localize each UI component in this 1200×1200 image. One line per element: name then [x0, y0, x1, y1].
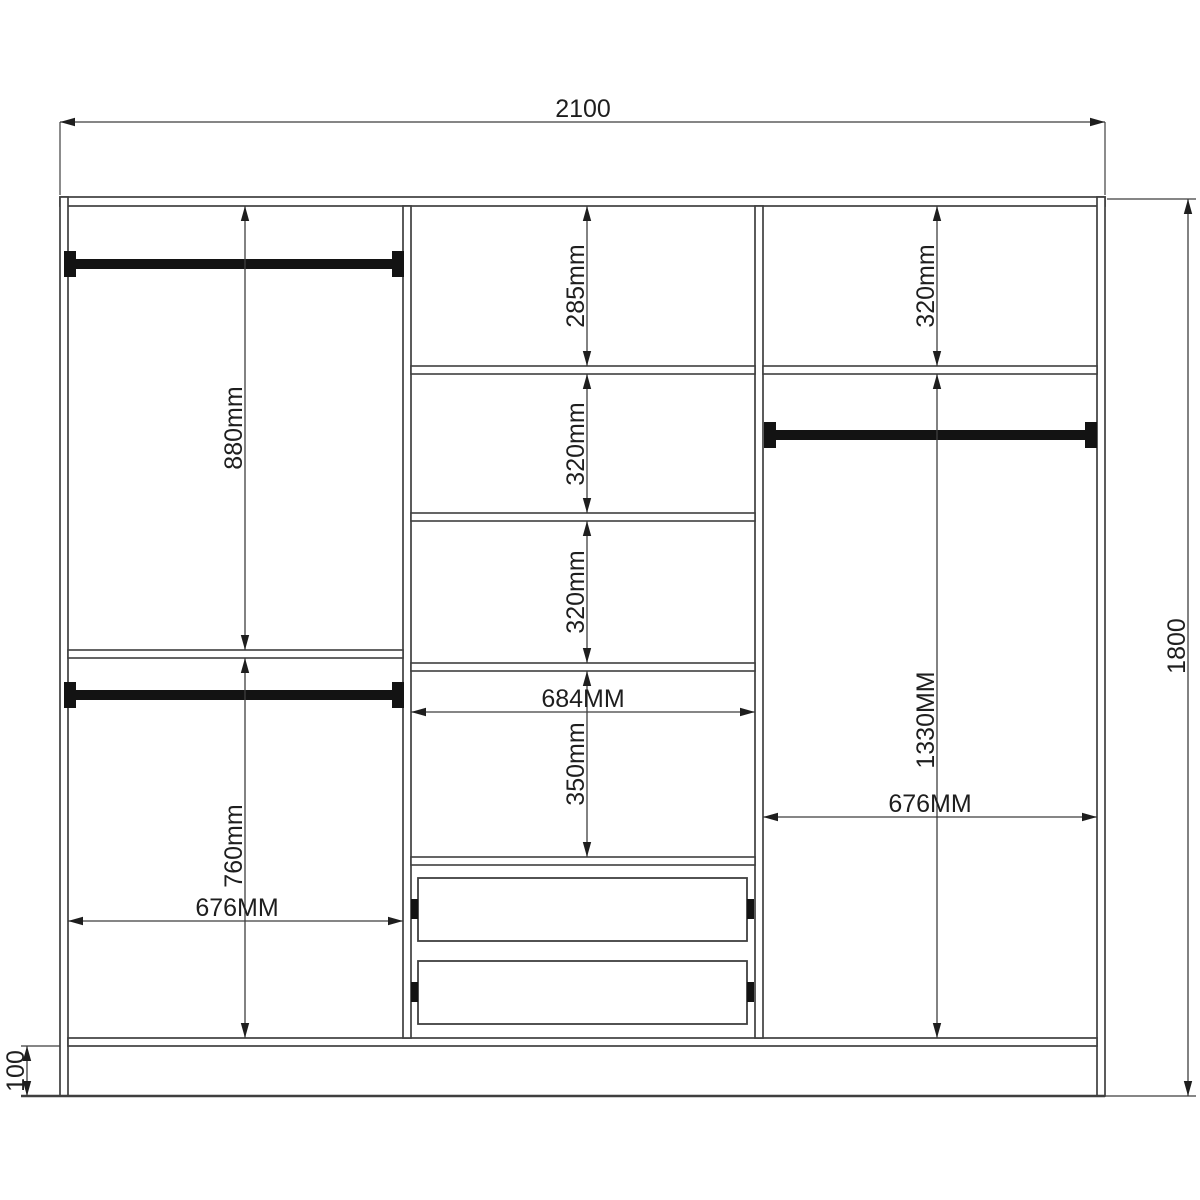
drawer-1	[411, 878, 754, 941]
dimension-arrow-left	[68, 917, 83, 925]
middle-shelf-3	[411, 663, 755, 671]
rail-bar	[776, 430, 1085, 440]
dimension-label: 320mm	[912, 244, 940, 327]
dimension-arrow-up	[583, 521, 591, 536]
dimension-label: 320mm	[562, 550, 590, 633]
dim-middle-shelf-gap-1: 320mm	[562, 374, 591, 513]
right-side-panel	[1097, 197, 1105, 1096]
right-hanging-rail	[764, 422, 1097, 448]
dimension-arrow-down	[583, 351, 591, 366]
left-upper-hanging-rail	[64, 251, 404, 277]
dimension-arrow-right	[1090, 118, 1105, 126]
middle-shelf-4	[411, 857, 755, 865]
dimension-label: 285mm	[562, 244, 590, 327]
dim-overall-height: 1800	[1163, 199, 1192, 1096]
dimension-arrow-up	[933, 374, 941, 389]
middle-shelf-2	[411, 513, 755, 521]
cabinet-structure	[21, 197, 1105, 1096]
dimension-label: 2100	[555, 95, 611, 123]
bottom-panel	[68, 1038, 1097, 1046]
dimension-arrow-up	[241, 658, 249, 673]
dimension-label: 880mm	[220, 386, 248, 469]
dimension-arrow-down	[583, 498, 591, 513]
dimension-label: 676MM	[195, 894, 278, 922]
dimension-label: 320mm	[562, 402, 590, 485]
dimension-arrow-left	[411, 708, 426, 716]
rail-bracket	[1085, 422, 1097, 448]
rail-bar	[74, 259, 394, 269]
dimension-arrow-right	[1082, 813, 1097, 821]
rail-bracket	[392, 682, 404, 708]
dim-right-top-gap: 320mm	[912, 206, 941, 366]
dimension-label: 100	[2, 1050, 30, 1092]
left-lower-hanging-rail	[64, 682, 404, 708]
left-section-shelf	[68, 650, 403, 658]
left-side-panel	[60, 197, 68, 1096]
dim-middle-top-gap: 285mm	[562, 206, 591, 366]
dimension-arrow-up	[583, 671, 591, 686]
drawer-front	[418, 878, 747, 941]
drawer-2	[411, 961, 754, 1024]
dimension-arrow-up	[241, 206, 249, 221]
dimension-arrow-down	[241, 635, 249, 650]
dimension-label: 1800	[1163, 618, 1191, 674]
top-panel	[60, 197, 1105, 206]
right-section-shelf	[763, 366, 1097, 374]
dimension-arrow-down	[1184, 1081, 1192, 1096]
dim-left-width: 676MM	[68, 894, 403, 925]
rail-bracket	[392, 251, 404, 277]
dimension-label: 760mm	[220, 804, 248, 887]
drawer-front	[418, 961, 747, 1024]
dimension-annotations: 880mm760mm285mm320mm320mm350mm320mm1330M…	[2, 95, 1192, 1096]
dimension-arrow-down	[583, 842, 591, 857]
dim-middle-shelf-gap-2: 320mm	[562, 521, 591, 663]
dimension-label: 350mm	[562, 722, 590, 805]
dimension-arrow-up	[583, 206, 591, 221]
dimension-arrow-right	[388, 917, 403, 925]
rail-bar	[74, 690, 394, 700]
dimension-arrow-left	[60, 118, 75, 126]
dimension-arrow-down	[241, 1023, 249, 1038]
rail-bracket	[764, 422, 776, 448]
dim-right-width: 676MM	[763, 790, 1097, 821]
wardrobe-technical-drawing: 880mm760mm285mm320mm320mm350mm320mm1330M…	[0, 0, 1200, 1200]
center-right-divider	[755, 206, 763, 1038]
dimension-label: 1330MM	[912, 671, 940, 768]
center-left-divider	[403, 206, 411, 1038]
dimension-arrow-up	[933, 206, 941, 221]
drawer-slide-clip	[411, 982, 418, 1002]
dim-middle-width: 684MM	[411, 685, 755, 716]
dimension-label: 684MM	[541, 685, 624, 713]
wardrobe-technical-drawing-page: 880mm760mm285mm320mm320mm350mm320mm1330M…	[0, 0, 1200, 1200]
dimension-label: 676MM	[888, 790, 971, 818]
dim-plinth-height: 100	[2, 1046, 31, 1096]
drawer-slide-clip	[747, 899, 754, 919]
dim-left-lower-height: 760mm	[220, 658, 249, 1038]
drawer-slide-clip	[411, 899, 418, 919]
dimension-arrow-down	[933, 351, 941, 366]
middle-shelf-1	[411, 366, 755, 374]
dimension-arrow-right	[740, 708, 755, 716]
dimension-arrow-down	[933, 1023, 941, 1038]
dimension-arrow-left	[763, 813, 778, 821]
dimension-arrow-down	[583, 648, 591, 663]
dim-right-hanging-height: 1330MM	[912, 374, 941, 1038]
drawer-slide-clip	[747, 982, 754, 1002]
dim-left-hanging-height: 880mm	[220, 206, 249, 650]
dim-overall-width: 2100	[60, 95, 1105, 126]
dimension-arrow-up	[1184, 199, 1192, 214]
dimension-arrow-up	[583, 374, 591, 389]
